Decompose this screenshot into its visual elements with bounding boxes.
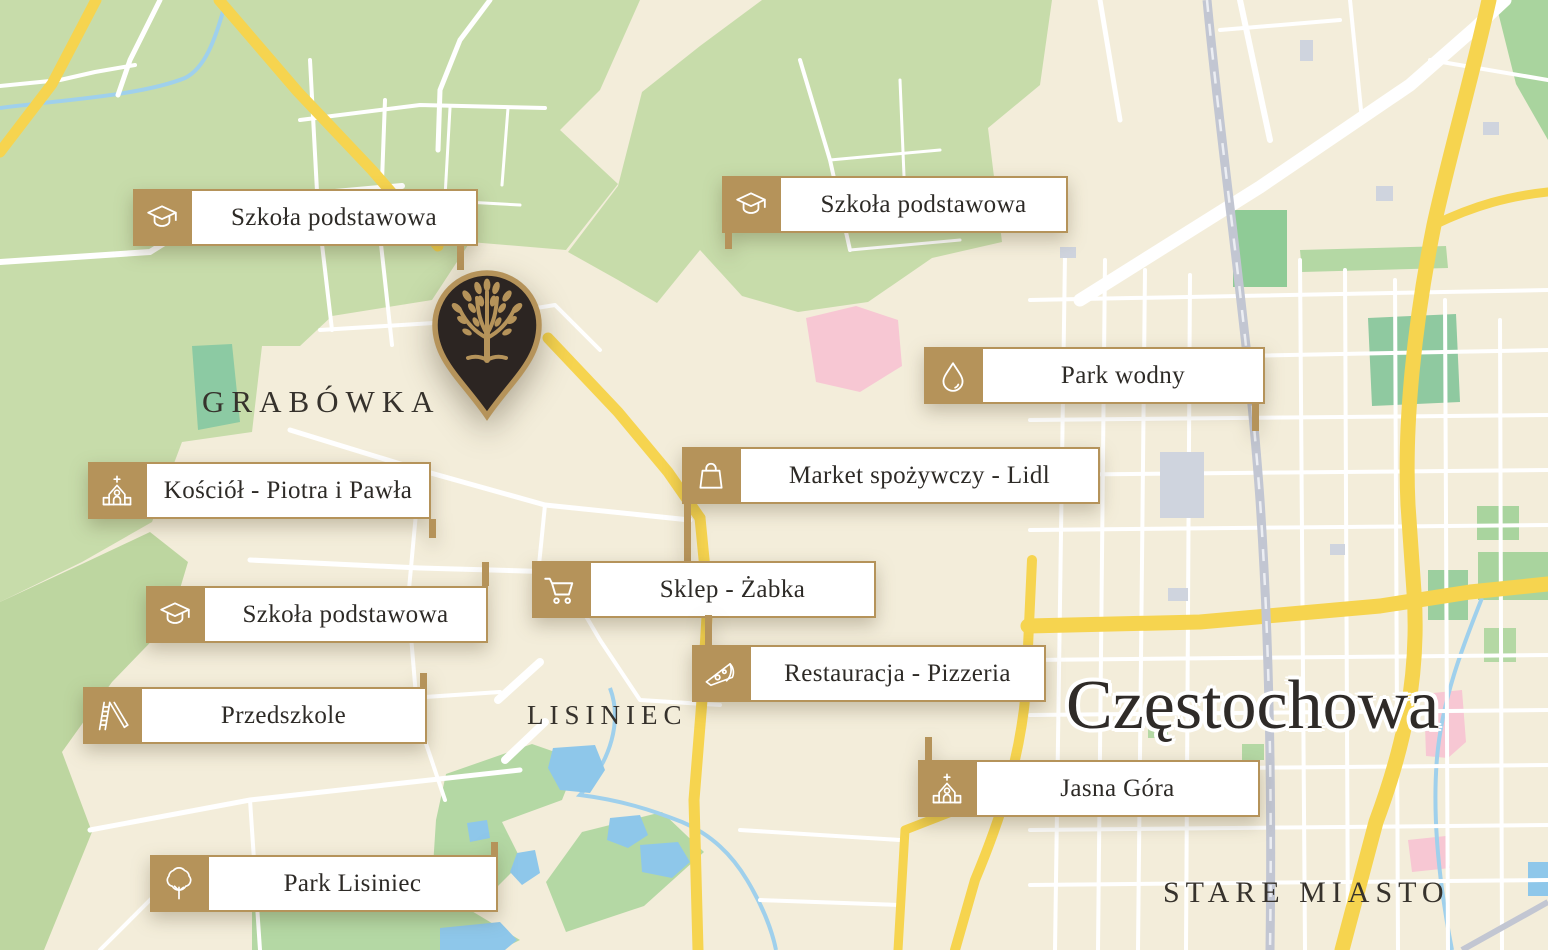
poi-label-school-3[interactable]: Szkoła podstawowa (146, 586, 488, 643)
label-connector (705, 615, 712, 645)
poi-label-text: Market spożywczy - Lidl (739, 447, 1100, 504)
church-icon (918, 760, 975, 817)
tree-icon (150, 855, 207, 912)
church-icon (88, 462, 145, 519)
poi-label-church-peter-paul[interactable]: Kościół - Piotra i Pawła (88, 462, 431, 519)
poi-label-school-2[interactable]: Szkoła podstawowa (722, 176, 1068, 233)
poi-label-text: Szkoła podstawowa (779, 176, 1068, 233)
label-connector (925, 737, 932, 760)
poi-label-shop-zabka[interactable]: Sklep - Żabka (532, 561, 876, 618)
graduation-cap-icon (133, 189, 190, 246)
poi-label-text: Park wodny (981, 347, 1265, 404)
district-label-stare-miasto: STARE MIASTO (1163, 876, 1450, 910)
district-label-lisiniec: LISINIEC (527, 700, 687, 731)
graduation-cap-icon (722, 176, 779, 233)
poi-label-text: Szkoła podstawowa (203, 586, 488, 643)
water-drop-icon (924, 347, 981, 404)
poi-label-restaurant-pizzeria[interactable]: Restauracja - Pizzeria (692, 645, 1046, 702)
playground-slide-icon (83, 687, 140, 744)
graduation-cap-icon (146, 586, 203, 643)
label-connector (1252, 404, 1259, 431)
poi-label-text: Sklep - Żabka (589, 561, 876, 618)
poi-label-grocery-lidl[interactable]: Market spożywczy - Lidl (682, 447, 1100, 504)
poi-label-school-1[interactable]: Szkoła podstawowa (133, 189, 478, 246)
label-connector (482, 562, 489, 586)
pizza-slice-icon (692, 645, 749, 702)
shopping-bag-icon (682, 447, 739, 504)
label-connector (429, 519, 436, 538)
district-label-grabowka: GRABÓWKA (202, 384, 441, 420)
poi-label-text: Restauracja - Pizzeria (749, 645, 1046, 702)
label-connector (725, 233, 732, 249)
poi-label-jasna-gora[interactable]: Jasna Góra (918, 760, 1260, 817)
city-label-czestochowa: Częstochowa (1066, 666, 1439, 746)
label-connector (684, 504, 691, 562)
poi-label-kindergarten[interactable]: Przedszkole (83, 687, 427, 744)
poi-label-text: Przedszkole (140, 687, 427, 744)
poi-label-water-park[interactable]: Park wodny (924, 347, 1265, 404)
label-connector (491, 842, 498, 855)
label-connector (420, 673, 427, 687)
poi-label-text: Szkoła podstawowa (190, 189, 478, 246)
poi-label-text: Kościół - Piotra i Pawła (145, 462, 431, 519)
poi-label-text: Park Lisiniec (207, 855, 498, 912)
poi-label-text: Jasna Góra (975, 760, 1260, 817)
map-root: Szkoła podstawowa Szkoła podstawowa Park… (0, 0, 1548, 950)
poi-label-park-lisiniec[interactable]: Park Lisiniec (150, 855, 498, 912)
shopping-cart-icon (532, 561, 589, 618)
